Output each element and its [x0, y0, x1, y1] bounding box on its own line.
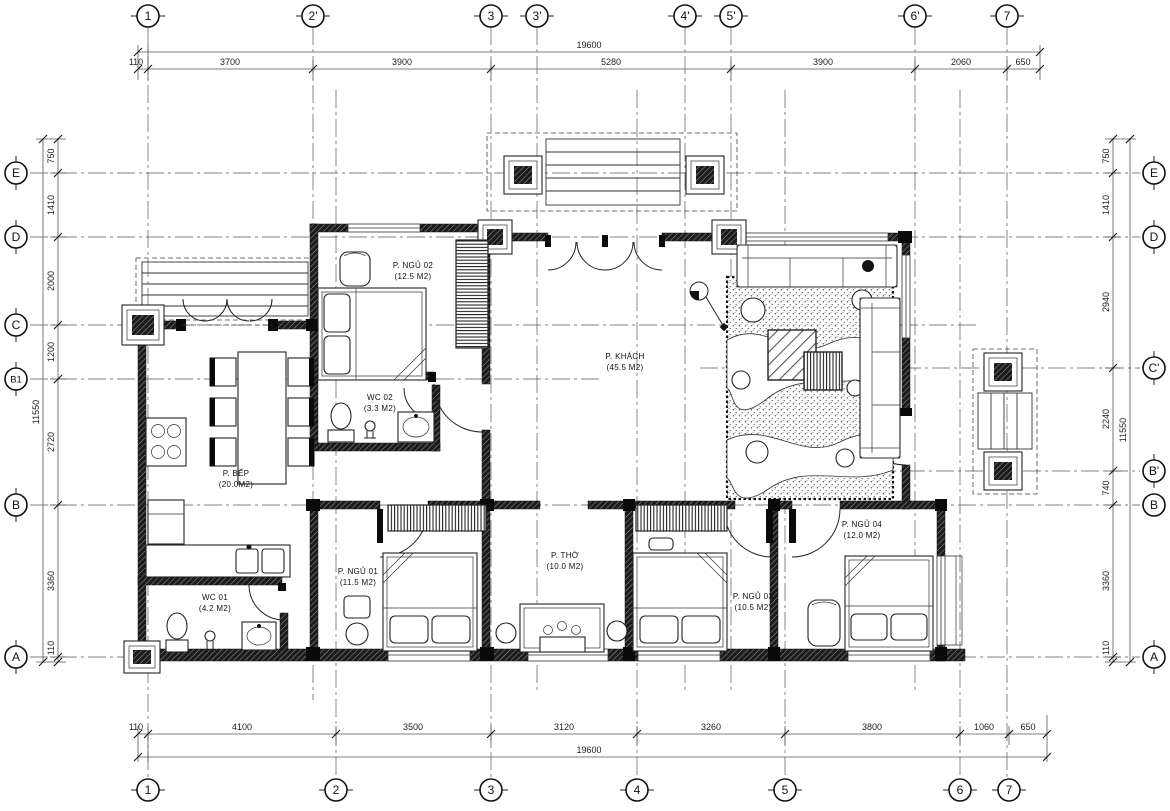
- wc01-fixtures: [166, 613, 276, 652]
- room-label-ngu03: P. NGỦ 03 (10.5 M2): [733, 592, 774, 612]
- room-label-ngu02: P. NGỦ 02 (12.5 M2): [393, 261, 434, 281]
- grid-bubbles-right: E D C' B' B A: [1143, 156, 1165, 674]
- svg-text:A: A: [12, 650, 20, 664]
- grid-top-7: 7: [990, 5, 1024, 27]
- svg-text:P. BẾP: P. BẾP: [223, 468, 250, 478]
- dining-set: [210, 352, 314, 484]
- dining-chair: [288, 398, 314, 426]
- grid-top-3p: 3': [520, 5, 554, 27]
- grid-bottom-4: 4: [620, 779, 654, 801]
- dim-bottom-1: 4100: [232, 722, 252, 732]
- dim-top-6: 650: [1015, 57, 1030, 67]
- dim-top-total: 19600: [576, 40, 601, 50]
- grid-left-C: C: [5, 308, 27, 342]
- bed-04: [845, 556, 933, 651]
- toilet-wc02: [328, 403, 354, 442]
- grid-top-3: 3: [474, 5, 508, 27]
- floor-drain-wc01: [204, 631, 216, 650]
- room-label-khach: P. KHÁCH (45.5 M2): [605, 352, 644, 372]
- dining-chair: [210, 398, 236, 426]
- room-label-tho: P. THỜ (10.0 M2): [547, 551, 584, 571]
- room-label-wc01: WC 01 (4.2 M2): [199, 593, 231, 613]
- dim-bottom-5: 3800: [862, 722, 882, 732]
- sofa-side: [860, 298, 900, 458]
- toilet-wc01: [166, 613, 188, 652]
- dim-bottom-total: 19600: [576, 745, 601, 755]
- dim-left-5: 3360: [46, 571, 56, 591]
- grid-left-A: A: [5, 640, 27, 674]
- column-a-left: [124, 641, 160, 673]
- sink-wc02: [398, 412, 434, 442]
- dim-left-1: 1410: [46, 195, 56, 215]
- svg-text:B1: B1: [10, 375, 22, 386]
- dim-chain-bottom: 19600 110 4100 3500 3120 3260 3800 1060 …: [129, 715, 1051, 762]
- dining-chair: [210, 438, 236, 466]
- dim-bottom-2: 3500: [403, 722, 423, 732]
- main-entrance-folding-door: [545, 235, 665, 270]
- dim-right-0: 750: [1101, 148, 1111, 163]
- svg-text:(12.5 M2): (12.5 M2): [395, 272, 432, 281]
- bed-02: [318, 288, 426, 380]
- dining-chair: [288, 438, 314, 466]
- svg-text:5: 5: [782, 783, 789, 797]
- grid-top-6p: 6': [898, 5, 932, 27]
- grid-top-5p: 5': [714, 5, 748, 27]
- svg-text:D: D: [12, 230, 21, 244]
- grid-right-B: B: [1143, 494, 1165, 516]
- bedroom04-furniture: [808, 556, 933, 651]
- floor-plan-drawing: 19600 110 3700 3900 5280 3900 2060 650 1…: [0, 0, 1170, 811]
- dim-left-6: 110: [46, 641, 56, 655]
- svg-text:3': 3': [533, 9, 542, 23]
- dining-chair: [210, 358, 236, 386]
- grid-left-B1: B1: [5, 362, 27, 396]
- dim-bottom-3: 3120: [554, 722, 574, 732]
- svg-text:(3.3 M2): (3.3 M2): [364, 404, 396, 413]
- svg-text:WC 02: WC 02: [367, 393, 393, 402]
- svg-text:B: B: [1150, 498, 1158, 512]
- window-bed04-bay: [937, 556, 962, 645]
- wardrobe-01: [388, 505, 486, 531]
- grid-bubbles-top: 1 2' 3 3' 4' 5' 6' 7: [131, 5, 1024, 27]
- svg-text:P. NGỦ 04: P. NGỦ 04: [842, 520, 883, 529]
- grid-bubbles-bottom: 1 2 3 4 5 6 7: [131, 779, 1026, 801]
- living-room-set: [690, 245, 900, 499]
- column-c-left: [122, 305, 164, 345]
- dim-bottom-7: 650: [1020, 722, 1035, 732]
- svg-text:A: A: [1150, 650, 1158, 664]
- dim-top-2: 3900: [392, 57, 412, 67]
- sofa-long: [737, 245, 897, 287]
- grid-top-1: 1: [131, 5, 165, 27]
- dim-bottom-0: 110: [129, 722, 143, 732]
- grid-lines: [30, 27, 1140, 779]
- dim-left-0: 750: [46, 148, 56, 163]
- dim-right-4: 740: [1101, 480, 1111, 495]
- side-table: [804, 352, 842, 390]
- svg-text:4: 4: [634, 783, 641, 797]
- grid-bottom-5: 5: [768, 779, 802, 801]
- chair-bed03: [649, 538, 673, 550]
- svg-text:7: 7: [1006, 783, 1013, 797]
- svg-text:B': B': [1149, 464, 1159, 478]
- svg-text:C: C: [12, 318, 21, 332]
- svg-text:E: E: [12, 166, 20, 180]
- altar-table: [520, 604, 604, 652]
- column-porch-right-top: [686, 156, 724, 194]
- grid-right-A: A: [1143, 640, 1165, 674]
- dim-right-6: 110: [1101, 641, 1111, 655]
- bed04-door: [789, 509, 840, 557]
- svg-text:(11.5 M2): (11.5 M2): [340, 578, 376, 587]
- wardrobe-02: [456, 240, 488, 348]
- kitchen-counter: [146, 545, 290, 578]
- kitchen-folding-door: [183, 299, 272, 325]
- grid-left-B: B: [5, 488, 27, 522]
- grid-top-2p: 2': [296, 5, 330, 27]
- svg-text:1: 1: [145, 783, 152, 797]
- dim-top-3: 5280: [601, 57, 621, 67]
- svg-text:P. KHÁCH: P. KHÁCH: [605, 352, 644, 361]
- dim-right-5: 3360: [1101, 571, 1111, 591]
- svg-text:P. NGỦ 03: P. NGỦ 03: [733, 592, 774, 601]
- room-label-ngu01: P. NGỦ 01 (11.5 M2): [338, 567, 379, 587]
- bed-03: [633, 553, 727, 651]
- dim-bottom-4: 3260: [701, 722, 721, 732]
- svg-text:C': C': [1149, 361, 1160, 375]
- svg-text:(45.5 M2): (45.5 M2): [607, 363, 644, 372]
- svg-text:(4.2 M2): (4.2 M2): [199, 604, 231, 613]
- stove: [146, 418, 186, 466]
- svg-text:3: 3: [488, 783, 495, 797]
- svg-text:6: 6: [957, 783, 964, 797]
- dim-chain-top: 19600 110 3700 3900 5280 3900 2060 650: [129, 40, 1044, 80]
- tho-furniture: [496, 604, 627, 652]
- grid-right-E: E: [1143, 156, 1165, 190]
- svg-text:P. NGỦ 01: P. NGỦ 01: [338, 567, 379, 576]
- svg-text:3: 3: [488, 9, 495, 23]
- dim-right-2: 2940: [1101, 292, 1111, 312]
- grid-left-E: E: [5, 156, 27, 190]
- svg-text:P. THỜ: P. THỜ: [551, 551, 579, 560]
- grid-bottom-6: 6: [943, 779, 977, 801]
- nightstand-01: [344, 596, 370, 645]
- dim-bottom-6: 1060: [974, 722, 994, 732]
- window-living-right: [902, 255, 910, 338]
- svg-text:WC 01: WC 01: [202, 593, 228, 602]
- grid-bottom-3: 3: [474, 779, 508, 801]
- dim-chain-right: 750 1410 2940 2240 740 3360 110 11550: [1101, 135, 1136, 666]
- floor-plan-canvas: 19600 110 3700 3900 5280 3900 2060 650 1…: [0, 0, 1170, 811]
- svg-text:2': 2': [309, 9, 318, 23]
- svg-text:6': 6': [911, 9, 920, 23]
- dining-chair: [288, 358, 314, 386]
- window-living-top: [745, 233, 888, 241]
- dim-top-4: 3900: [813, 57, 833, 67]
- room-label-ngu04: P. NGỦ 04 (12.0 M2): [842, 520, 883, 540]
- altar-stool-left: [496, 623, 516, 643]
- room-label-wc02: WC 02 (3.3 M2): [364, 393, 396, 413]
- grid-right-Bp: B': [1143, 454, 1165, 488]
- svg-text:(12.0 M2): (12.0 M2): [844, 531, 881, 540]
- svg-text:B: B: [12, 498, 20, 512]
- svg-text:(10.5 M2): (10.5 M2): [735, 603, 772, 612]
- grid-right-D: D: [1143, 220, 1165, 254]
- fridge: [148, 500, 184, 544]
- window-bed02-top: [348, 224, 420, 232]
- bed-01: [383, 553, 477, 651]
- svg-text:5': 5': [727, 9, 736, 23]
- column-porch-right-lower: [984, 452, 1022, 490]
- svg-text:E: E: [1150, 166, 1158, 180]
- column-porch-left-top: [504, 156, 542, 194]
- svg-text:D: D: [1150, 230, 1159, 244]
- detail-callout: [690, 282, 728, 331]
- floor-drain-wc02: [364, 421, 376, 438]
- dim-right-3: 2240: [1101, 409, 1111, 429]
- altar-stool-right: [607, 621, 627, 641]
- dim-top-5: 2060: [951, 57, 971, 67]
- dim-left-3: 1200: [46, 342, 56, 362]
- dim-top-0: 110: [129, 57, 143, 67]
- dim-right-total: 11550: [1118, 418, 1128, 442]
- sink-wc01: [242, 622, 276, 650]
- grid-top-4p: 4': [668, 5, 702, 27]
- grid-bubbles-left: E D C B1 B A: [5, 156, 27, 674]
- svg-text:2: 2: [333, 783, 340, 797]
- dim-left-4: 2720: [46, 432, 56, 452]
- svg-text:P. NGỦ 02: P. NGỦ 02: [393, 261, 434, 270]
- svg-text:7: 7: [1004, 9, 1011, 23]
- dim-chain-left: 750 1410 2000 1200 2720 3360 110 11550: [31, 135, 66, 666]
- wardrobe-03: [636, 505, 727, 531]
- grid-bottom-7: 7: [992, 779, 1026, 801]
- grid-bottom-1: 1: [131, 779, 165, 801]
- grid-left-D: D: [5, 220, 27, 254]
- teapot-icon: [862, 260, 874, 272]
- kitchen-furniture: [146, 352, 314, 577]
- svg-text:(10.0 M2): (10.0 M2): [547, 562, 584, 571]
- chair-bed04: [808, 600, 840, 646]
- dim-top-1: 3700: [220, 57, 240, 67]
- svg-text:(20.0M2): (20.0M2): [219, 480, 253, 489]
- grid-right-Cp: C': [1143, 351, 1165, 385]
- dim-left-total: 11550: [31, 400, 41, 424]
- bedroom03-furniture: [633, 505, 727, 651]
- column-porch-right-upper: [984, 353, 1022, 391]
- svg-text:1: 1: [145, 9, 152, 23]
- chair-bed02: [340, 252, 370, 286]
- dim-left-2: 2000: [46, 271, 56, 291]
- grid-bottom-2: 2: [319, 779, 353, 801]
- dim-right-1: 1410: [1101, 195, 1111, 215]
- svg-text:4': 4': [681, 9, 690, 23]
